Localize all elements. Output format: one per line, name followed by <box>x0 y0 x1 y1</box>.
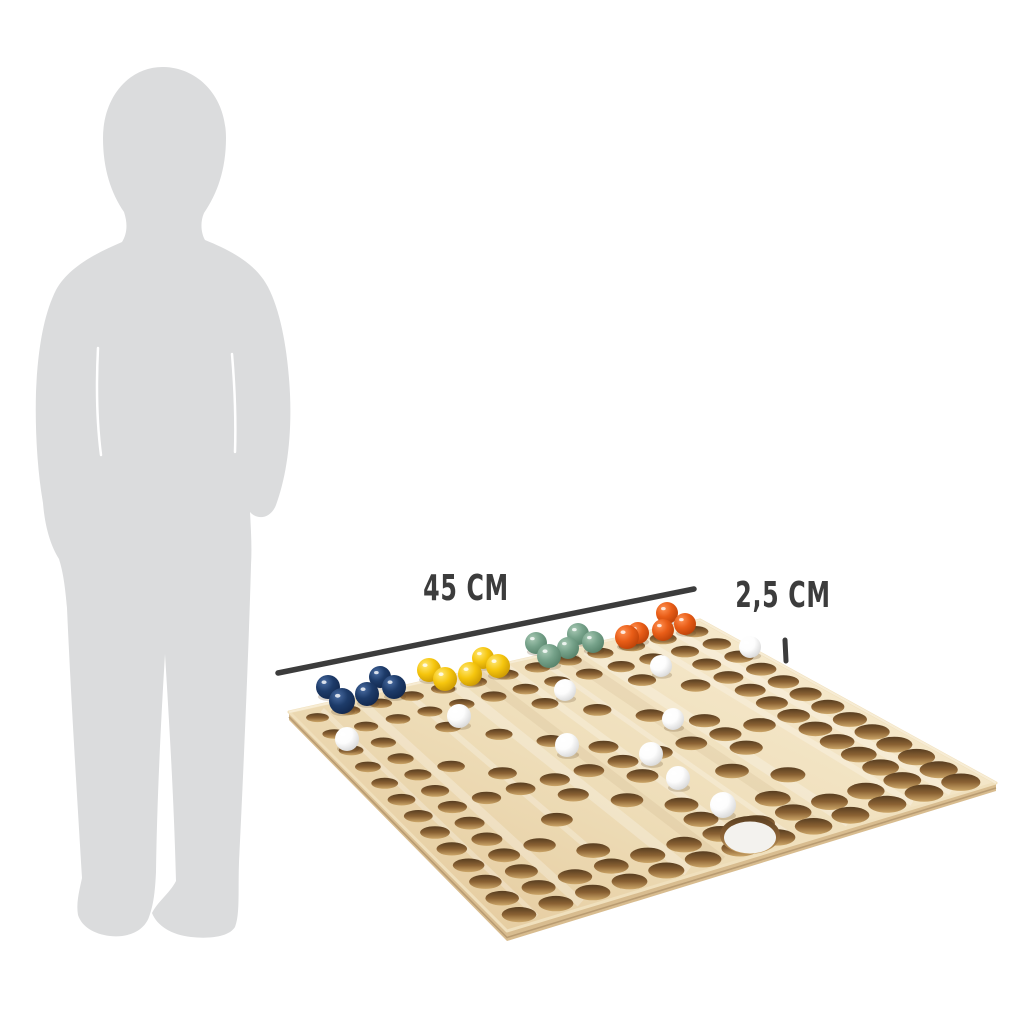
ball-highlight <box>744 641 749 644</box>
board-hole <box>355 762 381 773</box>
board-hole <box>594 859 629 874</box>
board-hole <box>472 792 501 804</box>
ball-highlight <box>341 732 346 736</box>
board-hole <box>558 788 589 801</box>
ball-highlight <box>464 667 469 671</box>
board-width-label: 45 cm <box>387 571 545 607</box>
yellow-ball <box>458 662 482 686</box>
ball-highlight <box>335 694 340 698</box>
ball-highlight <box>587 636 592 639</box>
white-ball <box>650 655 672 677</box>
white-ball <box>555 733 579 757</box>
board-hole <box>775 804 812 820</box>
board-hole <box>811 700 844 714</box>
white-ball <box>662 708 684 730</box>
orange-ball <box>615 625 639 649</box>
sage-green-ball <box>537 644 561 668</box>
scene-svg <box>0 0 1010 1010</box>
board-hole <box>540 773 570 786</box>
board-hole <box>777 709 810 723</box>
board-hole <box>354 722 378 732</box>
white-ball <box>666 766 690 790</box>
white-ball <box>710 792 736 818</box>
board-hole <box>485 891 519 906</box>
board-hole <box>505 864 538 878</box>
board-hole <box>502 907 537 922</box>
white-ball <box>639 742 663 766</box>
sage-green-ball <box>582 631 604 653</box>
board-hole <box>420 826 450 839</box>
board-hole <box>608 755 639 768</box>
board-hole <box>709 727 741 741</box>
board-hole <box>689 714 720 727</box>
board-hole <box>648 863 684 879</box>
board-hole <box>576 669 603 680</box>
ball-highlight <box>657 624 662 627</box>
ball-highlight <box>562 642 567 645</box>
ball-highlight <box>530 637 535 640</box>
board-hole <box>715 764 749 779</box>
ball-highlight <box>655 660 660 663</box>
board-hole <box>421 785 449 797</box>
board-hole <box>481 691 507 701</box>
board-hole <box>811 794 848 810</box>
white-ball <box>335 727 359 751</box>
board-hole <box>471 833 502 846</box>
child-silhouette <box>36 67 291 938</box>
board-hole <box>306 713 329 722</box>
board-hole <box>438 801 467 813</box>
board-hole <box>692 659 721 671</box>
ball-highlight <box>667 713 672 716</box>
hole-diameter-label: 2,5 cm <box>704 578 862 614</box>
board-hole <box>575 885 610 901</box>
board-hole <box>386 714 411 724</box>
board-hole <box>506 783 536 796</box>
board-hole <box>755 791 791 807</box>
board-hole <box>627 769 659 783</box>
ball-highlight <box>661 607 666 610</box>
ball-highlight <box>543 649 548 653</box>
board-hole <box>746 663 776 676</box>
board-hole <box>868 796 906 813</box>
ball-highlight <box>453 709 458 713</box>
board-hole <box>611 793 644 807</box>
navy-blue-ball <box>355 682 379 706</box>
board-hole <box>541 813 573 827</box>
board-hole <box>574 764 605 777</box>
orange-ball <box>674 613 696 635</box>
board-hole <box>455 817 485 830</box>
board-hole <box>799 722 833 737</box>
board-hole <box>703 638 731 650</box>
board-hole <box>820 734 855 749</box>
ball-highlight <box>679 618 684 621</box>
ball-highlight <box>322 680 327 684</box>
board-hole <box>538 896 573 911</box>
board-hole <box>855 724 890 739</box>
board-hole <box>388 794 416 806</box>
game-board <box>289 620 996 941</box>
board-hole <box>768 675 799 688</box>
ball-highlight <box>621 630 626 634</box>
board-hole <box>488 848 520 862</box>
board-hole <box>532 698 559 709</box>
board-hole <box>488 767 517 779</box>
board-hole <box>612 874 648 890</box>
white-ball <box>739 636 761 658</box>
board-hole <box>770 767 805 782</box>
navy-blue-ball <box>382 675 406 699</box>
board-hole <box>675 737 707 751</box>
white-ball <box>447 704 471 728</box>
board-hole <box>665 798 699 813</box>
ball-highlight <box>423 663 428 667</box>
board-hole <box>523 838 555 852</box>
board-hole <box>371 778 398 789</box>
board-hole <box>841 747 877 763</box>
board-hole <box>685 851 722 867</box>
board-hole <box>905 785 944 802</box>
board-hole <box>453 859 485 873</box>
board-hole <box>941 774 980 791</box>
ball-highlight <box>572 628 577 631</box>
board-hole <box>628 674 656 686</box>
ball-highlight <box>361 687 366 691</box>
board-hole <box>437 761 465 772</box>
yellow-ball <box>433 667 457 691</box>
board-hole <box>485 729 512 740</box>
hole-depth-tick <box>785 640 786 661</box>
board-hole <box>756 696 788 710</box>
board-hole <box>671 646 699 658</box>
board-hole <box>558 869 592 884</box>
board-hole <box>437 842 468 855</box>
board-hole <box>589 741 619 754</box>
board-hole <box>735 684 766 697</box>
board-hole <box>576 843 610 858</box>
board-hole <box>713 671 743 684</box>
ball-highlight <box>561 738 566 742</box>
board-hole <box>666 837 702 853</box>
board-hole <box>388 753 414 764</box>
board-hole <box>522 880 556 895</box>
navy-blue-ball <box>329 688 355 714</box>
ball-highlight <box>672 771 677 775</box>
board-hole <box>371 738 396 748</box>
board-hole <box>583 704 611 716</box>
big-corner-hole <box>724 822 776 854</box>
ball-highlight <box>716 798 721 802</box>
board-hole <box>743 718 776 732</box>
board-hole <box>636 709 666 722</box>
ball-highlight <box>559 684 564 687</box>
board-hole <box>404 769 431 780</box>
board-hole <box>417 707 442 717</box>
board-hole <box>630 848 665 863</box>
product-photo-stage: 45 cm 2,5 cm <box>0 0 1010 1010</box>
yellow-ball <box>486 654 510 678</box>
ball-highlight <box>374 671 379 674</box>
board-hole <box>833 712 867 727</box>
board-hole <box>513 684 539 695</box>
board-hole <box>730 741 763 755</box>
board-hole <box>831 807 869 824</box>
board-hole <box>404 810 433 822</box>
ball-highlight <box>492 659 497 663</box>
board-hole <box>608 661 635 672</box>
ball-highlight <box>388 680 393 684</box>
ball-highlight <box>645 747 650 751</box>
ball-highlight <box>439 672 444 676</box>
board-hole <box>795 818 833 835</box>
ball-highlight <box>477 652 482 655</box>
white-ball <box>554 679 576 701</box>
board-hole <box>790 687 822 701</box>
board-hole <box>681 679 711 691</box>
orange-ball <box>652 619 674 641</box>
board-hole <box>469 875 502 889</box>
